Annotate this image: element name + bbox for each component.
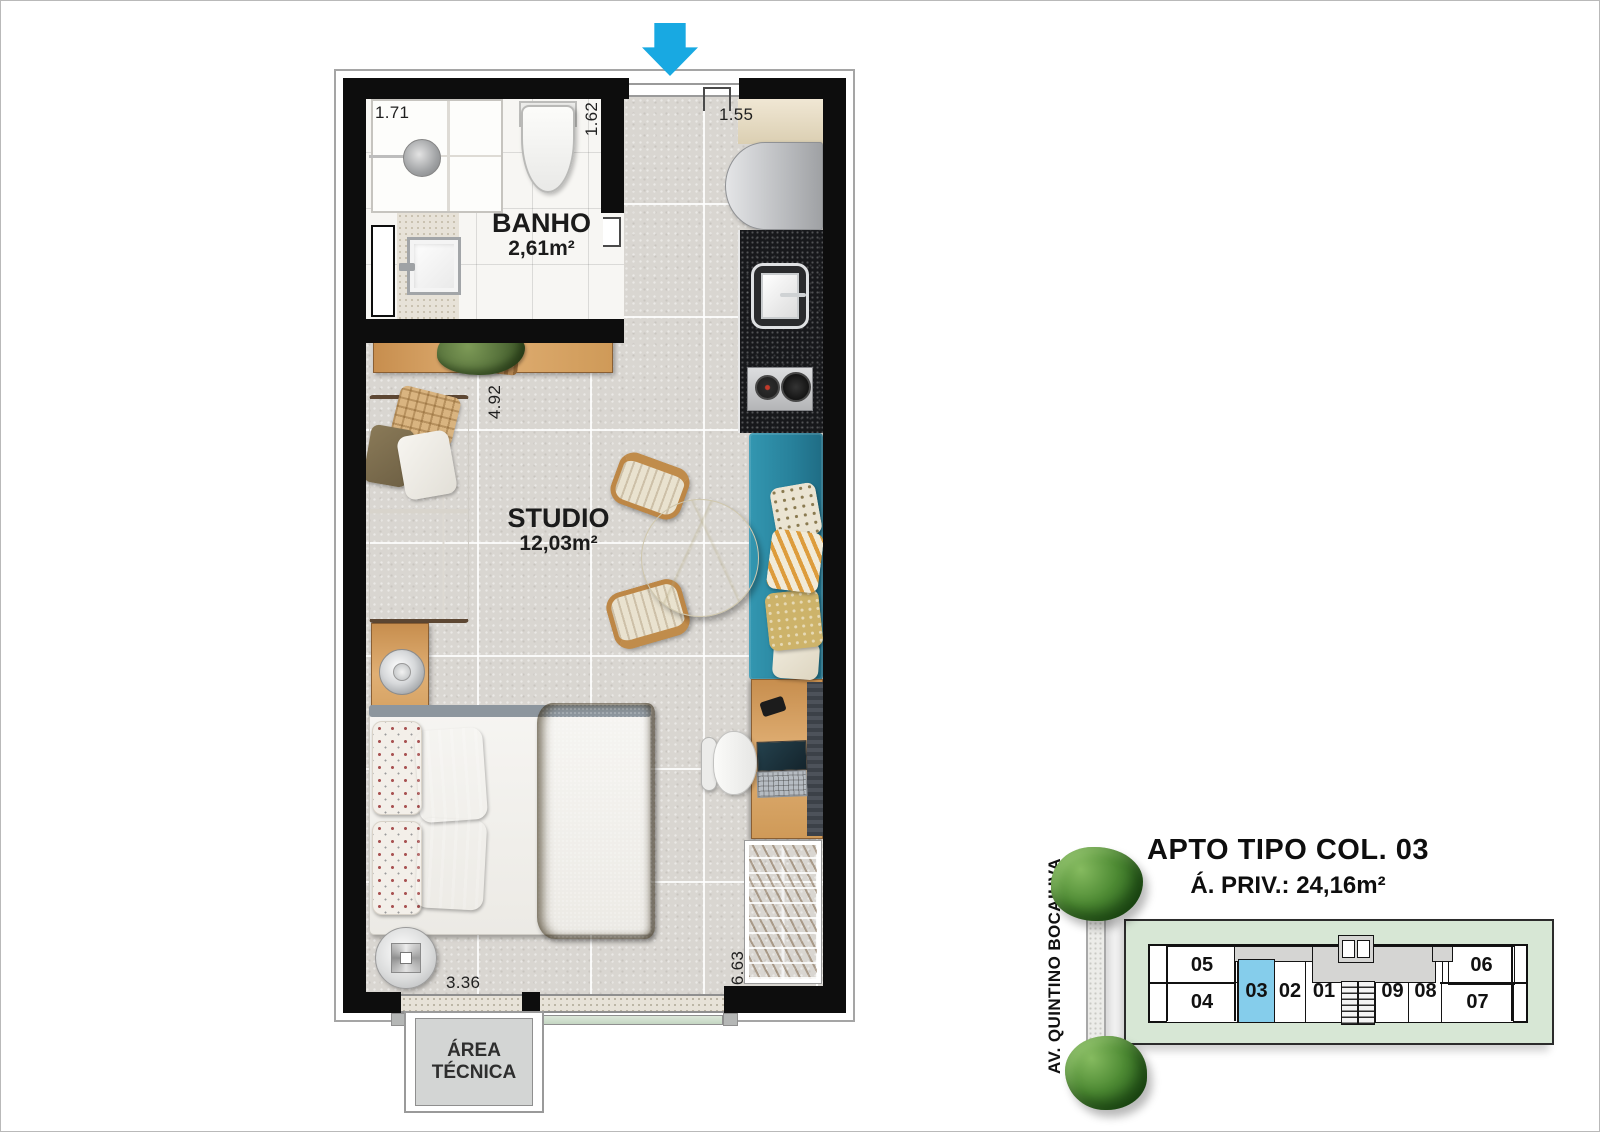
unit-07: 07	[1441, 982, 1514, 1022]
kp-divider-h-left	[1150, 982, 1236, 984]
banho-area: 2,61m²	[469, 237, 614, 261]
floor-lamp-core	[400, 952, 412, 964]
kp-divider-h-right	[1440, 982, 1526, 984]
legend-subtitle: Á. PRIV.: 24,16m²	[1088, 872, 1488, 900]
shower-arm	[369, 155, 407, 158]
legend-title-block: APTO TIPO COL. 03 Á. PRIV.: 24,16m²	[1088, 834, 1488, 900]
wall-right	[823, 78, 846, 1013]
unit-03: 03	[1238, 959, 1275, 1022]
sink-faucet	[399, 263, 415, 271]
bathroom-sink	[407, 237, 461, 295]
unit-04-label: 04	[1191, 991, 1213, 1014]
studio-name: STUDIO	[486, 504, 631, 532]
kp-corridor-right	[1432, 946, 1453, 962]
unit-02-label: 02	[1279, 980, 1301, 1003]
wall-bottom-mullion	[522, 992, 540, 1013]
unit-03-label: 03	[1245, 980, 1267, 1003]
bed-pillow-patterned-2	[372, 821, 422, 915]
wall-bathroom-bottom	[343, 319, 624, 343]
cooktop-burner-large	[781, 372, 811, 402]
dim-shower-width: 1.71	[375, 103, 409, 123]
unit-02: 02	[1273, 959, 1307, 1022]
window-glass-strip	[541, 1015, 723, 1025]
fridge	[725, 142, 823, 230]
studio-area: 12,03m²	[486, 532, 631, 556]
bench-pillow-gold	[764, 588, 824, 651]
unit-06-label: 06	[1470, 954, 1492, 977]
wardrobe	[745, 841, 821, 983]
banho-label: BANHO 2,61m²	[469, 209, 614, 261]
floor-plan-sheet: ÁREA TÉCNICA BANHO 2,61m² STUDIO 12,03m²…	[0, 0, 1600, 1132]
window-sill-right	[540, 994, 724, 1013]
dining-table	[641, 499, 759, 617]
bed-blanket	[537, 703, 655, 939]
kp-corridor-middle	[1312, 946, 1436, 983]
dim-studio-width: 3.36	[446, 973, 480, 993]
bed-pillow-brown-1	[414, 727, 488, 824]
kp-elevator-2	[1357, 940, 1370, 958]
desk-runner	[807, 682, 823, 836]
dim-banho-depth: 1.62	[582, 96, 602, 142]
shower-drain	[403, 139, 441, 177]
kp-elevator-block	[1338, 935, 1374, 963]
table-lamp-center	[393, 663, 411, 681]
area-tecnica-label-line2: TÉCNICA	[432, 1062, 516, 1084]
unit-06: 06	[1448, 946, 1515, 985]
bench-pillow-leaf	[766, 528, 825, 594]
dim-studio-length: 4.92	[485, 379, 505, 425]
tree-bottom	[1065, 1036, 1147, 1110]
wall-bottom-left	[343, 992, 401, 1013]
unit-05-label: 05	[1191, 954, 1213, 977]
unit-07-label: 07	[1466, 991, 1488, 1014]
wall-bathroom-side	[601, 97, 624, 213]
studio-label: STUDIO 12,03m²	[486, 504, 631, 556]
kp-stairs	[1341, 981, 1375, 1025]
area-tecnica-label-line1: ÁREA	[447, 1040, 501, 1062]
wall-left	[343, 78, 366, 1013]
legend-title: APTO TIPO COL. 03	[1088, 834, 1488, 867]
kitchen-faucet	[780, 293, 806, 297]
office-chair-seat	[713, 731, 757, 795]
sofa-pillow-white	[396, 429, 458, 501]
bed-pillow-patterned-1	[372, 721, 422, 815]
dim-entry-width: 1.55	[719, 105, 753, 125]
bed-pillow-brown-2	[415, 817, 488, 910]
kp-elevator-1	[1342, 940, 1355, 958]
laptop-keyboard	[757, 770, 808, 798]
area-tecnica-box: ÁREA TÉCNICA	[415, 1018, 533, 1106]
cooktop-burner-small	[755, 375, 780, 400]
glass-strip-cap-right	[723, 1013, 738, 1026]
laptop	[756, 740, 807, 772]
wall-niche	[371, 225, 395, 317]
unit-05: 05	[1166, 946, 1238, 985]
unit-04: 04	[1166, 982, 1238, 1022]
dim-side-length: 6.63	[728, 945, 748, 991]
banho-name: BANHO	[469, 209, 614, 237]
